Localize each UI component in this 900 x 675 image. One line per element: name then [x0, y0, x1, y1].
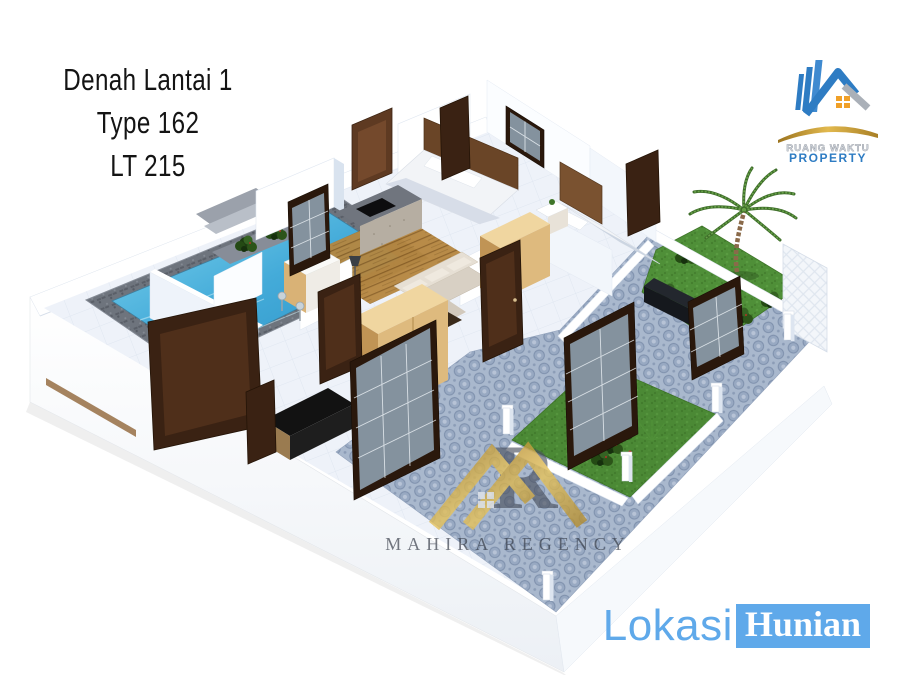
wooden-door: [480, 240, 523, 362]
title-block: Denah Lantai 1 Type 162 LT 215: [45, 58, 251, 187]
plan-title: Denah Lantai 1: [45, 58, 251, 101]
window-icon: [836, 96, 850, 108]
gold-swoosh: [778, 126, 878, 143]
wooden-door: [148, 298, 263, 450]
developer-logo: RUANG WAKTU PROPERTY: [776, 46, 880, 164]
wooden-door: [440, 96, 470, 180]
badge-word-lokasi: Lokasi: [603, 601, 733, 651]
wooden-door: [246, 380, 276, 464]
plan-land-area: LT 215: [45, 144, 251, 187]
developer-tagline: PROPERTY: [789, 151, 867, 164]
watermark-text: MAHIRA REGENCY: [385, 534, 631, 554]
plan-type: Type 162: [45, 101, 251, 144]
wooden-door: [626, 150, 660, 236]
location-badge: Lokasi Hunian: [603, 601, 870, 651]
badge-word-hunian: Hunian: [736, 604, 870, 648]
floor-plan-poster: R MAHIRA REGENCY Denah Lantai 1 Type 162…: [0, 0, 900, 675]
